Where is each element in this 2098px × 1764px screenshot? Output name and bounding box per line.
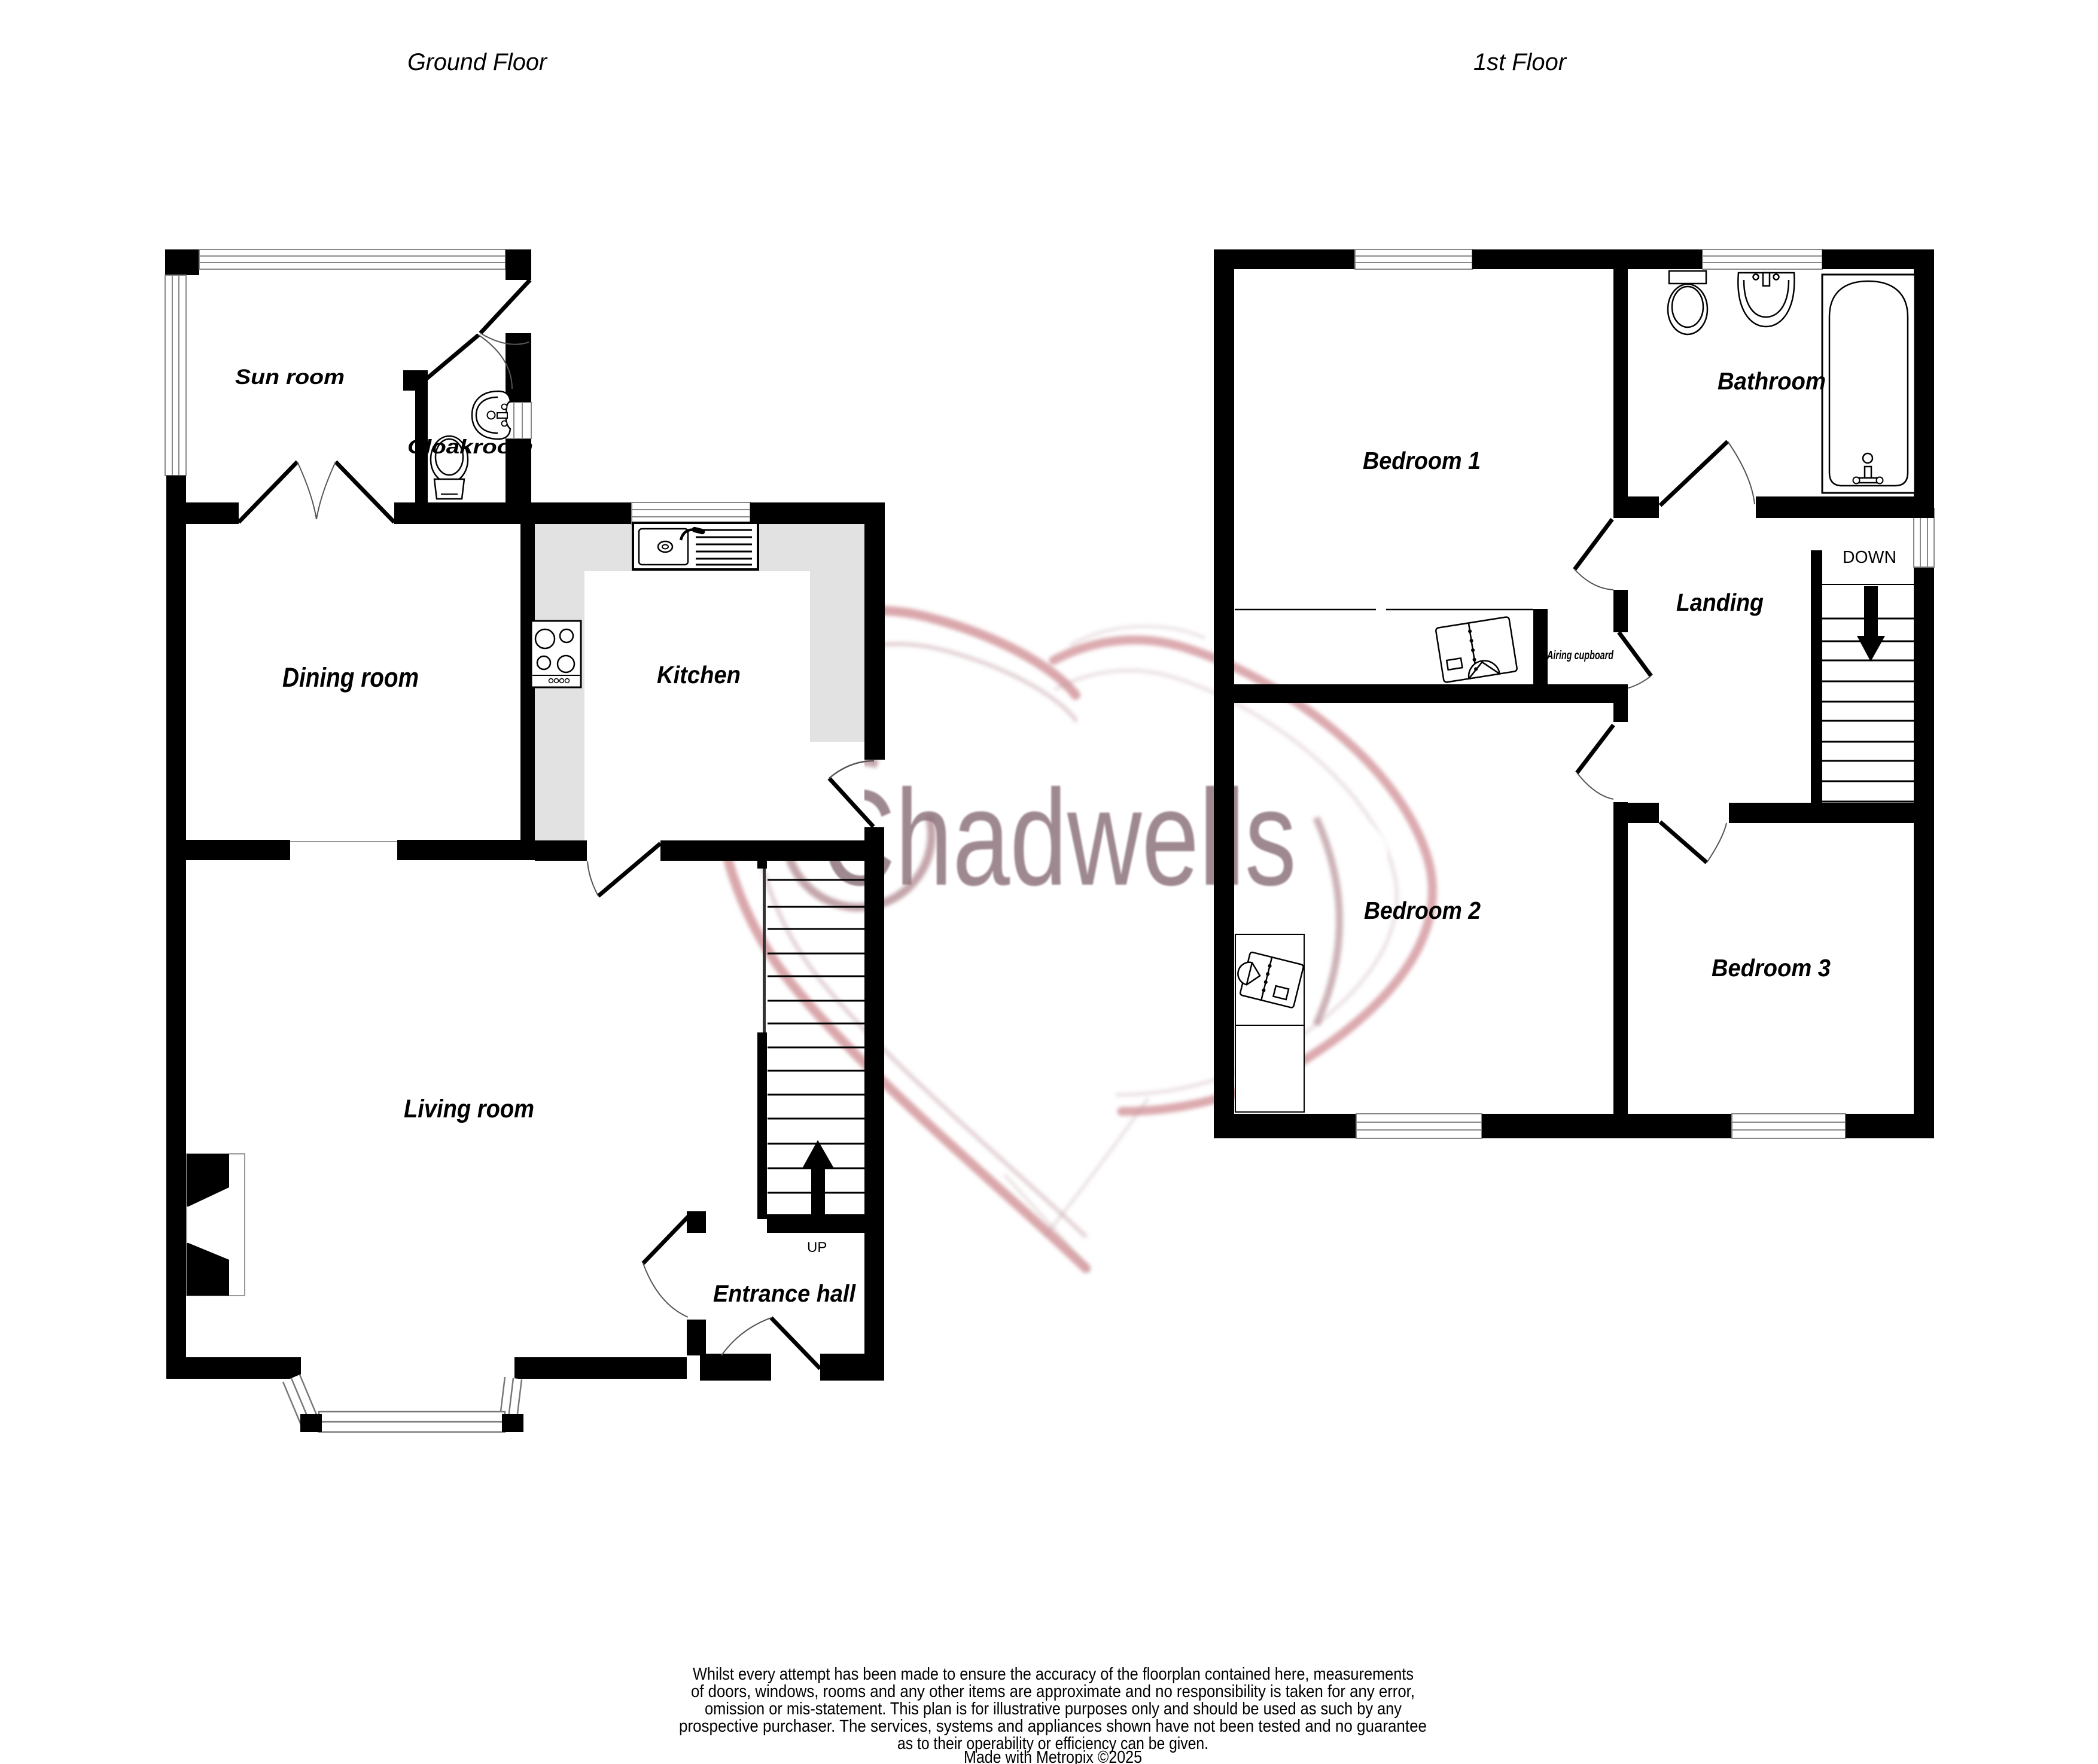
svg-text:Bedroom 3: Bedroom 3 xyxy=(1712,954,1831,982)
svg-text:prospective purchaser. The ser: prospective purchaser. The services, sys… xyxy=(679,1717,1427,1736)
svg-text:of doors, windows, rooms and a: of doors, windows, rooms and any other i… xyxy=(691,1682,1415,1701)
svg-text:1st Floor: 1st Floor xyxy=(1473,49,1567,75)
svg-text:Made with Metropix ©2025: Made with Metropix ©2025 xyxy=(964,1748,1142,1764)
svg-text:Ground Floor: Ground Floor xyxy=(407,49,548,75)
svg-text:DOWN: DOWN xyxy=(1843,548,1896,567)
svg-text:Living room: Living room xyxy=(404,1095,534,1123)
svg-text:Bedroom 1: Bedroom 1 xyxy=(1363,447,1481,474)
svg-text:omission or mis-statement. Thi: omission or mis-statement. This plan is … xyxy=(705,1699,1402,1719)
svg-text:Sun room: Sun room xyxy=(235,365,345,389)
svg-text:UP: UP xyxy=(807,1239,827,1256)
svg-text:Bathroom: Bathroom xyxy=(1718,367,1826,395)
svg-text:Airing cupboard: Airing cupboard xyxy=(1546,649,1613,662)
svg-text:Cloakroom: Cloakroom xyxy=(407,435,533,458)
svg-text:Kitchen: Kitchen xyxy=(657,661,741,688)
svg-text:Dining room: Dining room xyxy=(282,662,419,693)
svg-text:Whilst every attempt has been: Whilst every attempt has been made to en… xyxy=(693,1665,1414,1684)
svg-text:Landing: Landing xyxy=(1676,589,1764,616)
svg-text:Entrance hall: Entrance hall xyxy=(713,1281,856,1307)
svg-text:Bedroom 2: Bedroom 2 xyxy=(1364,897,1481,924)
